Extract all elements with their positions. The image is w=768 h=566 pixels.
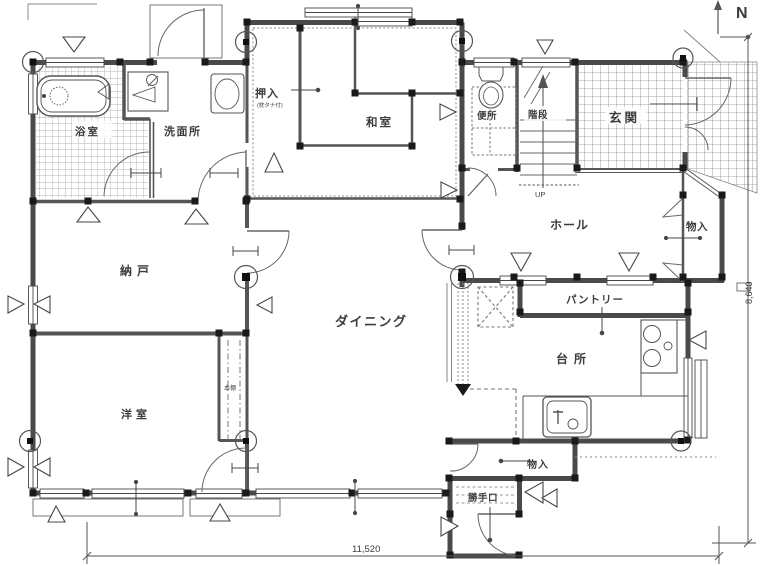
room-label-storage-bottom: 物入	[527, 458, 549, 471]
leader-pantry	[600, 307, 604, 335]
door-backdoor	[478, 514, 520, 556]
room-label-yoshitsu: 洋室	[121, 407, 151, 421]
door-nando	[247, 231, 289, 273]
stairs-treads	[520, 66, 577, 188]
toilet-icon	[479, 67, 503, 108]
window-kitchen-east	[684, 358, 707, 438]
dining-counter-band	[447, 283, 471, 396]
south-step-2	[190, 499, 280, 516]
tick-bottom-window-2	[353, 479, 356, 514]
room-label-backdoor: 勝手口	[468, 492, 498, 504]
door-toilet	[468, 168, 496, 196]
dimension-width-label: 11,520	[352, 544, 380, 555]
pantry-x-cabinet	[478, 287, 513, 327]
room-label-dining: ダイニング	[335, 314, 408, 329]
door-yoshitsu	[202, 448, 246, 492]
room-label-hall: ホール	[550, 218, 589, 232]
north-label: N	[736, 5, 748, 22]
window-top-bath	[46, 58, 104, 67]
room-label-bookshelf: 本棚	[224, 384, 236, 392]
windows-bottom	[40, 489, 442, 498]
bathtub-icon	[37, 76, 110, 116]
room-label-pantry: パントリー	[566, 294, 624, 306]
room-label-washitsu: 和室	[366, 115, 393, 129]
room-label-genkan: 玄関	[609, 110, 640, 125]
label-stairs-up: UP	[535, 190, 545, 199]
door-washroom-nando	[198, 150, 246, 202]
room-label-oshiire: 押入	[255, 86, 279, 100]
room-label-nando: 納戸	[120, 263, 154, 278]
room-label-kitchen: 台所	[556, 351, 592, 366]
washroom-porch	[150, 5, 222, 58]
room-label-toilet: 便所	[477, 110, 497, 122]
floor-plan-drawing: 浴室 洗面所 押入 (枕タナ付) 和室 便所 階段 UP 玄関 ホール 物入 納…	[0, 0, 768, 566]
floor-plan: 浴室 洗面所 押入 (枕タナ付) 和室 便所 階段 UP 玄関 ホール 物入 納…	[0, 0, 768, 566]
room-label-oshiire-note: (枕タナ付)	[257, 101, 283, 109]
room-label-washroom: 洗面所	[164, 124, 202, 138]
kitchen-floor-boundary	[470, 389, 516, 441]
window-stairs-top	[522, 58, 570, 67]
window-toilet-top	[474, 58, 514, 67]
window-yoshitsu-left	[29, 450, 38, 488]
door-storage-bottom	[450, 444, 478, 471]
washing-machine-icon	[211, 74, 244, 113]
room-label-storage-right: 物入	[686, 220, 708, 233]
leader-backdoor	[488, 507, 492, 542]
porch-tile	[688, 62, 757, 193]
vanity-basin-icon	[128, 72, 168, 111]
leader-oshiire	[291, 88, 320, 92]
window-bath-left	[29, 74, 38, 114]
dimension-height-label: 8,640	[744, 281, 754, 304]
room-label-stairs: 階段	[528, 109, 548, 121]
stove-icon	[641, 320, 677, 373]
room-label-bath: 浴室	[75, 125, 100, 138]
